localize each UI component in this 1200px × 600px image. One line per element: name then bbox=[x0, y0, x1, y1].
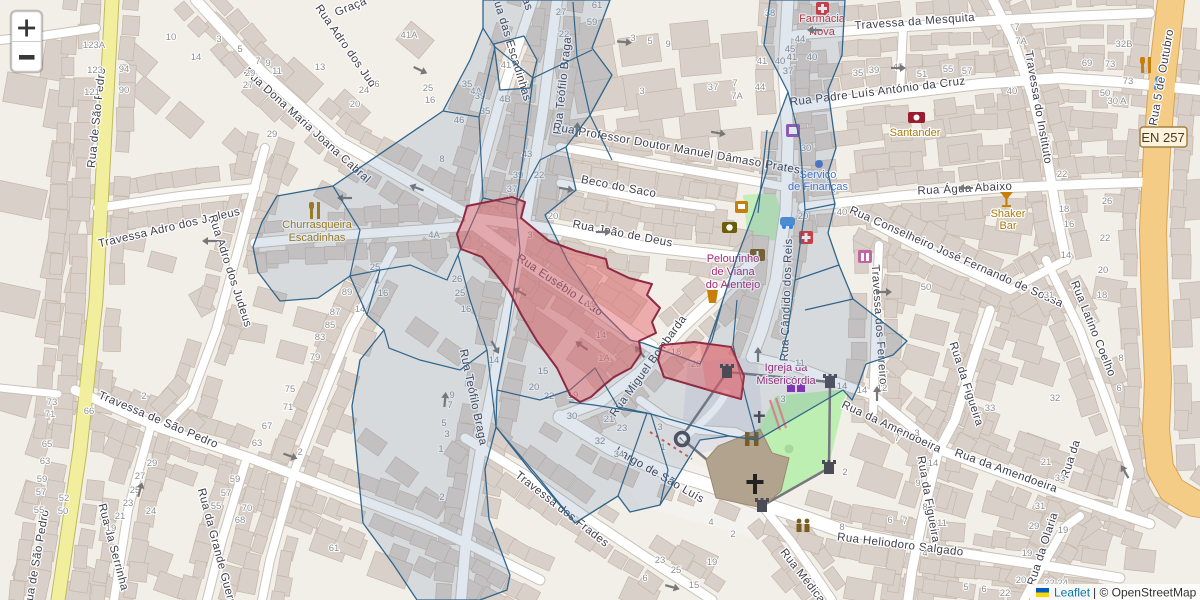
svg-text:123A: 123A bbox=[83, 40, 106, 51]
svg-text:41: 41 bbox=[501, 60, 512, 71]
svg-text:70: 70 bbox=[242, 503, 253, 514]
svg-text:44: 44 bbox=[755, 82, 766, 93]
svg-text:73: 73 bbox=[1105, 59, 1116, 70]
svg-text:9: 9 bbox=[915, 478, 920, 489]
svg-text:29: 29 bbox=[245, 68, 256, 79]
svg-text:75: 75 bbox=[285, 384, 296, 395]
svg-text:3: 3 bbox=[639, 86, 644, 97]
svg-text:57: 57 bbox=[36, 487, 47, 498]
svg-text:71: 71 bbox=[45, 409, 56, 420]
svg-text:24: 24 bbox=[359, 85, 370, 96]
svg-text:41: 41 bbox=[757, 56, 768, 67]
svg-text:27: 27 bbox=[135, 471, 146, 482]
svg-text:7A: 7A bbox=[1015, 36, 1027, 47]
svg-text:5: 5 bbox=[647, 36, 652, 47]
svg-text:63: 63 bbox=[40, 456, 51, 467]
svg-text:29: 29 bbox=[147, 458, 158, 469]
svg-text:59: 59 bbox=[230, 474, 241, 485]
svg-text:94: 94 bbox=[119, 64, 130, 75]
svg-text:35: 35 bbox=[853, 68, 864, 79]
svg-text:23: 23 bbox=[655, 555, 666, 566]
svg-text:| © OpenStreetMap: | © OpenStreetMap bbox=[1093, 586, 1197, 600]
svg-text:31: 31 bbox=[1044, 290, 1055, 301]
svg-text:83: 83 bbox=[315, 332, 326, 343]
svg-text:19: 19 bbox=[1022, 548, 1033, 559]
svg-text:71: 71 bbox=[283, 402, 294, 413]
svg-text:7: 7 bbox=[732, 78, 737, 89]
svg-text:89: 89 bbox=[342, 287, 353, 298]
svg-text:11: 11 bbox=[272, 66, 282, 77]
svg-text:4: 4 bbox=[708, 517, 713, 528]
svg-text:55: 55 bbox=[211, 501, 222, 512]
svg-text:22: 22 bbox=[1000, 588, 1011, 599]
svg-text:33: 33 bbox=[985, 403, 996, 414]
svg-text:19: 19 bbox=[707, 557, 718, 568]
svg-text:Bar: Bar bbox=[999, 220, 1016, 232]
svg-text:Santander: Santander bbox=[890, 127, 941, 139]
svg-text:6: 6 bbox=[642, 573, 647, 584]
svg-text:16: 16 bbox=[425, 95, 436, 106]
svg-text:6: 6 bbox=[374, 79, 379, 90]
svg-text:40: 40 bbox=[837, 207, 848, 218]
svg-text:11: 11 bbox=[937, 518, 947, 529]
svg-text:6: 6 bbox=[981, 584, 986, 595]
svg-text:29: 29 bbox=[267, 129, 278, 140]
svg-text:9: 9 bbox=[665, 39, 670, 50]
svg-text:55: 55 bbox=[34, 505, 45, 516]
svg-text:85: 85 bbox=[325, 320, 336, 331]
svg-text:63: 63 bbox=[252, 438, 263, 449]
svg-text:31: 31 bbox=[1035, 501, 1046, 512]
svg-text:20: 20 bbox=[350, 99, 361, 110]
svg-text:16: 16 bbox=[1064, 219, 1075, 230]
svg-text:18: 18 bbox=[1059, 204, 1070, 215]
svg-text:3: 3 bbox=[216, 34, 221, 45]
svg-text:25: 25 bbox=[671, 565, 682, 576]
svg-text:EN 257: EN 257 bbox=[1141, 130, 1184, 145]
svg-text:2: 2 bbox=[141, 391, 146, 402]
svg-text:65: 65 bbox=[42, 439, 53, 450]
svg-text:5: 5 bbox=[963, 582, 968, 593]
svg-text:61: 61 bbox=[329, 543, 340, 554]
svg-text:79: 79 bbox=[310, 352, 321, 363]
svg-text:20: 20 bbox=[1016, 575, 1027, 586]
svg-text:7: 7 bbox=[894, 433, 899, 444]
svg-text:7: 7 bbox=[1014, 22, 1019, 33]
svg-text:32B: 32B bbox=[1116, 39, 1133, 50]
svg-text:6: 6 bbox=[887, 515, 892, 526]
svg-text:51: 51 bbox=[917, 69, 928, 80]
svg-text:123: 123 bbox=[87, 65, 103, 76]
svg-text:87: 87 bbox=[330, 307, 341, 318]
svg-text:18: 18 bbox=[1097, 290, 1108, 301]
svg-text:21: 21 bbox=[115, 511, 126, 522]
svg-text:73: 73 bbox=[47, 397, 58, 408]
svg-text:5: 5 bbox=[237, 44, 242, 55]
svg-text:69: 69 bbox=[1082, 58, 1093, 69]
svg-text:15: 15 bbox=[689, 580, 700, 591]
svg-text:19: 19 bbox=[106, 523, 117, 534]
svg-text:27: 27 bbox=[243, 80, 254, 91]
svg-text:50: 50 bbox=[921, 282, 932, 293]
svg-text:73: 73 bbox=[1123, 76, 1134, 87]
svg-text:4: 4 bbox=[922, 548, 927, 559]
svg-text:41A: 41A bbox=[401, 30, 419, 41]
svg-text:7: 7 bbox=[255, 56, 260, 67]
svg-text:13: 13 bbox=[315, 62, 326, 73]
svg-text:26: 26 bbox=[1102, 196, 1113, 207]
svg-text:90: 90 bbox=[119, 85, 130, 96]
svg-text:23: 23 bbox=[123, 498, 134, 509]
svg-text:22: 22 bbox=[1057, 169, 1068, 180]
svg-text:2: 2 bbox=[297, 447, 302, 458]
svg-text:67: 67 bbox=[262, 421, 273, 432]
svg-text:14: 14 bbox=[928, 458, 939, 469]
svg-text:33: 33 bbox=[1055, 473, 1066, 484]
svg-text:Leaflet: Leaflet bbox=[1054, 586, 1091, 600]
svg-text:39: 39 bbox=[869, 65, 880, 76]
svg-text:8: 8 bbox=[1118, 353, 1123, 364]
svg-text:55: 55 bbox=[943, 64, 954, 75]
svg-text:40: 40 bbox=[1007, 86, 1018, 97]
svg-text:50: 50 bbox=[58, 506, 69, 517]
svg-text:2: 2 bbox=[730, 529, 735, 540]
svg-text:68: 68 bbox=[235, 515, 246, 526]
svg-text:8: 8 bbox=[839, 522, 844, 533]
svg-text:30 A: 30 A bbox=[1107, 96, 1127, 107]
svg-text:66: 66 bbox=[84, 406, 95, 417]
svg-text:57: 57 bbox=[221, 488, 232, 499]
svg-text:25: 25 bbox=[423, 83, 434, 94]
svg-text:57: 57 bbox=[962, 66, 973, 77]
svg-text:3: 3 bbox=[914, 428, 919, 439]
svg-text:22: 22 bbox=[1100, 233, 1111, 244]
svg-text:Shaker: Shaker bbox=[991, 208, 1026, 220]
svg-text:9: 9 bbox=[265, 58, 270, 69]
svg-text:20: 20 bbox=[548, 211, 559, 222]
svg-text:6: 6 bbox=[1116, 383, 1121, 394]
svg-text:59: 59 bbox=[37, 474, 48, 485]
svg-text:8: 8 bbox=[922, 502, 927, 513]
svg-text:20: 20 bbox=[1098, 265, 1109, 276]
svg-text:29: 29 bbox=[1029, 521, 1040, 532]
svg-text:50: 50 bbox=[1100, 88, 1111, 99]
svg-text:121: 121 bbox=[84, 87, 100, 98]
svg-text:14: 14 bbox=[1061, 250, 1072, 261]
svg-text:52: 52 bbox=[59, 493, 70, 504]
svg-text:24: 24 bbox=[146, 506, 157, 517]
svg-text:19: 19 bbox=[1058, 525, 1069, 536]
svg-text:21: 21 bbox=[1041, 457, 1052, 468]
svg-text:10: 10 bbox=[166, 32, 177, 43]
svg-text:14: 14 bbox=[191, 52, 202, 63]
svg-text:7A: 7A bbox=[731, 91, 743, 102]
svg-text:7: 7 bbox=[902, 516, 907, 527]
svg-text:37: 37 bbox=[708, 82, 719, 93]
svg-text:2: 2 bbox=[842, 467, 847, 478]
svg-text:32: 32 bbox=[1050, 393, 1061, 404]
